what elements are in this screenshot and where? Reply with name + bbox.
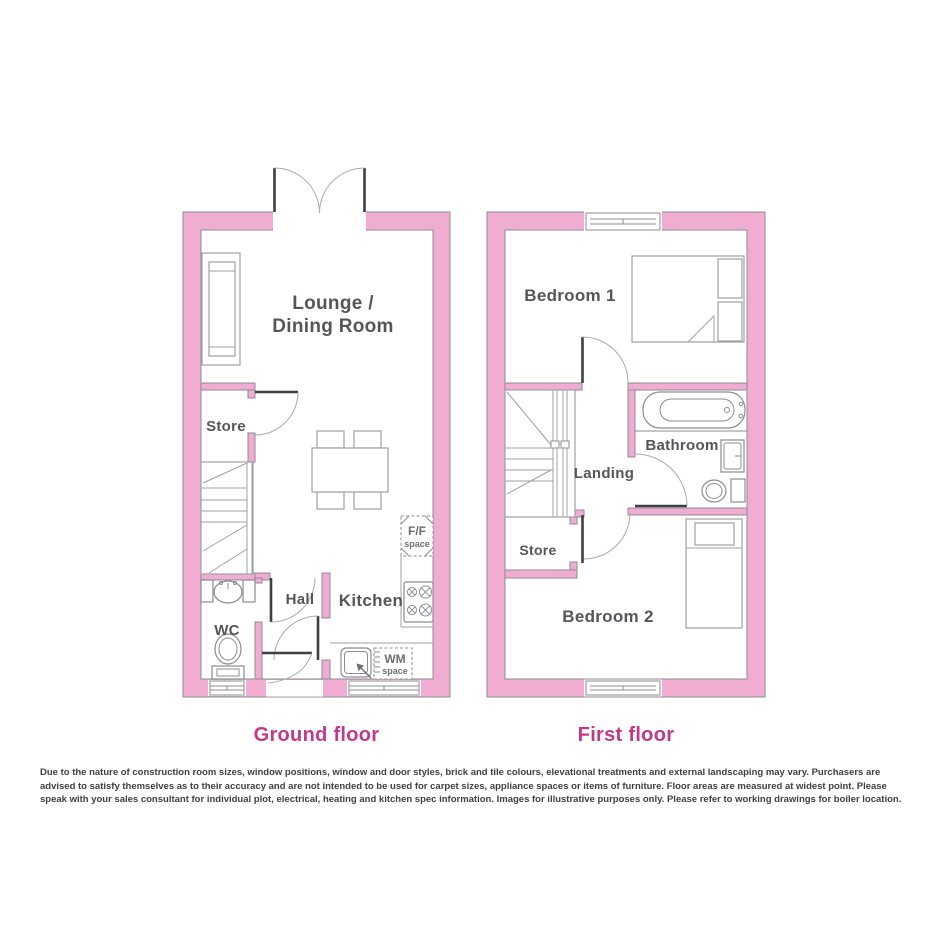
room-label-bathroom: Bathroom — [645, 437, 718, 454]
floorplan-page: F/F space — [0, 0, 945, 945]
stairs-first — [505, 390, 575, 517]
room-label-landing: Landing — [574, 465, 634, 482]
bathroom-toilet — [702, 479, 745, 502]
wc-toilet — [212, 634, 244, 679]
room-label-wc: WC — [214, 622, 240, 639]
floorplan-drawing: F/F space — [0, 0, 945, 710]
room-label-store-ground: Store — [206, 418, 246, 435]
kitchen-window — [347, 680, 421, 696]
hob — [404, 582, 433, 622]
wc-window — [208, 680, 246, 696]
disclaimer-text: Due to the nature of construction room s… — [40, 766, 906, 807]
ff-space-label-line1: F/F — [408, 524, 426, 538]
ground-floor-caption: Ground floor — [183, 724, 450, 747]
store-door — [255, 392, 298, 435]
room-label-bedroom2: Bedroom 2 — [562, 607, 654, 626]
bedroom2-door — [583, 513, 631, 563]
room-label-store-first: Store — [519, 542, 556, 558]
kitchen-sink — [341, 648, 371, 678]
wc-basin — [201, 580, 255, 603]
room-label-lounge-line2: Dining Room — [272, 316, 394, 337]
ff-space-label-line2: space — [404, 539, 430, 549]
room-label-kitchen: Kitchen — [339, 591, 403, 610]
sofa — [202, 253, 240, 365]
front-door — [262, 653, 323, 697]
stairs-ground — [201, 462, 253, 574]
wm-space-label-line2: space — [382, 666, 408, 676]
first-floor-plan: Bedroom 1 Bathroom Landing Store Bedroom… — [487, 211, 765, 697]
bedroom2-window — [584, 680, 662, 697]
bed-double — [632, 256, 744, 342]
room-label-lounge-line1: Lounge / — [292, 293, 374, 314]
dining-table — [312, 431, 388, 509]
washing-machine-space: WM space — [374, 648, 412, 679]
first-floor-caption: First floor — [487, 724, 765, 747]
french-doors — [273, 168, 366, 231]
bath — [635, 392, 747, 431]
bed-single — [686, 519, 742, 628]
room-label-hall: Hall — [286, 591, 315, 608]
bedroom1-door — [583, 337, 629, 383]
wm-space-label-line1: WM — [384, 652, 405, 666]
ground-floor-plan: F/F space — [183, 168, 450, 697]
room-label-bedroom1: Bedroom 1 — [524, 286, 616, 305]
bathroom-basin — [721, 440, 744, 472]
bathroom-door — [635, 454, 687, 506]
bedroom1-window — [584, 211, 662, 231]
fridge-freezer-space: F/F space — [401, 516, 433, 556]
